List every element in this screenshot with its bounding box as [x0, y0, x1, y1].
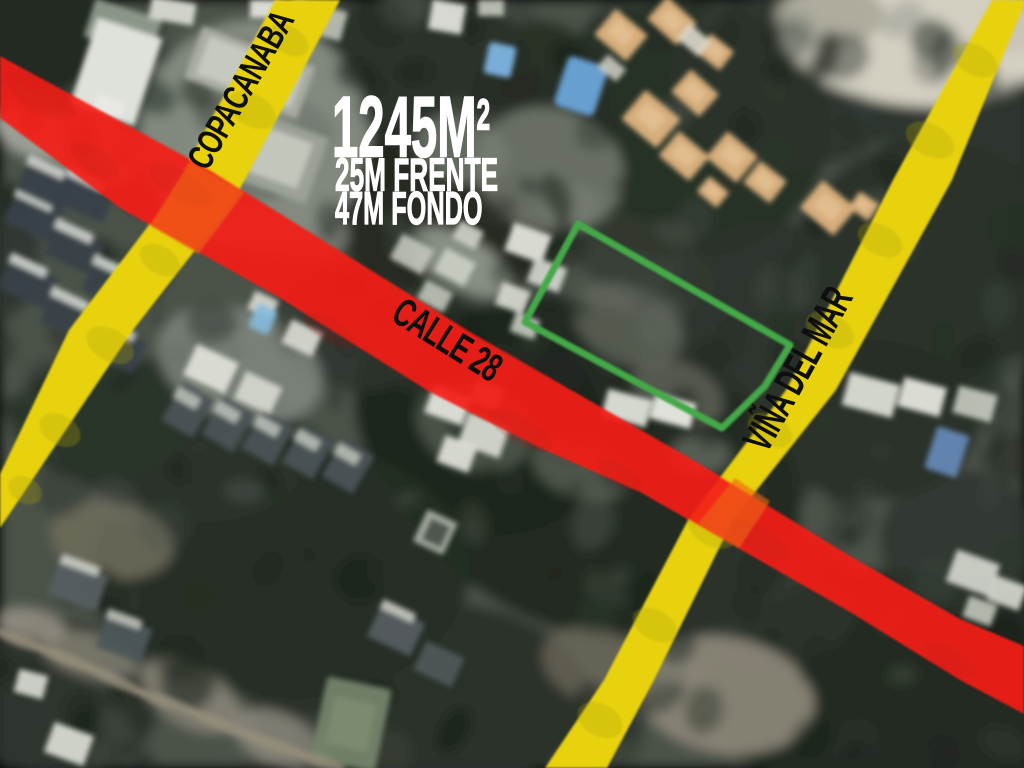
svg-text:47M FONDO: 47M FONDO [335, 182, 483, 234]
